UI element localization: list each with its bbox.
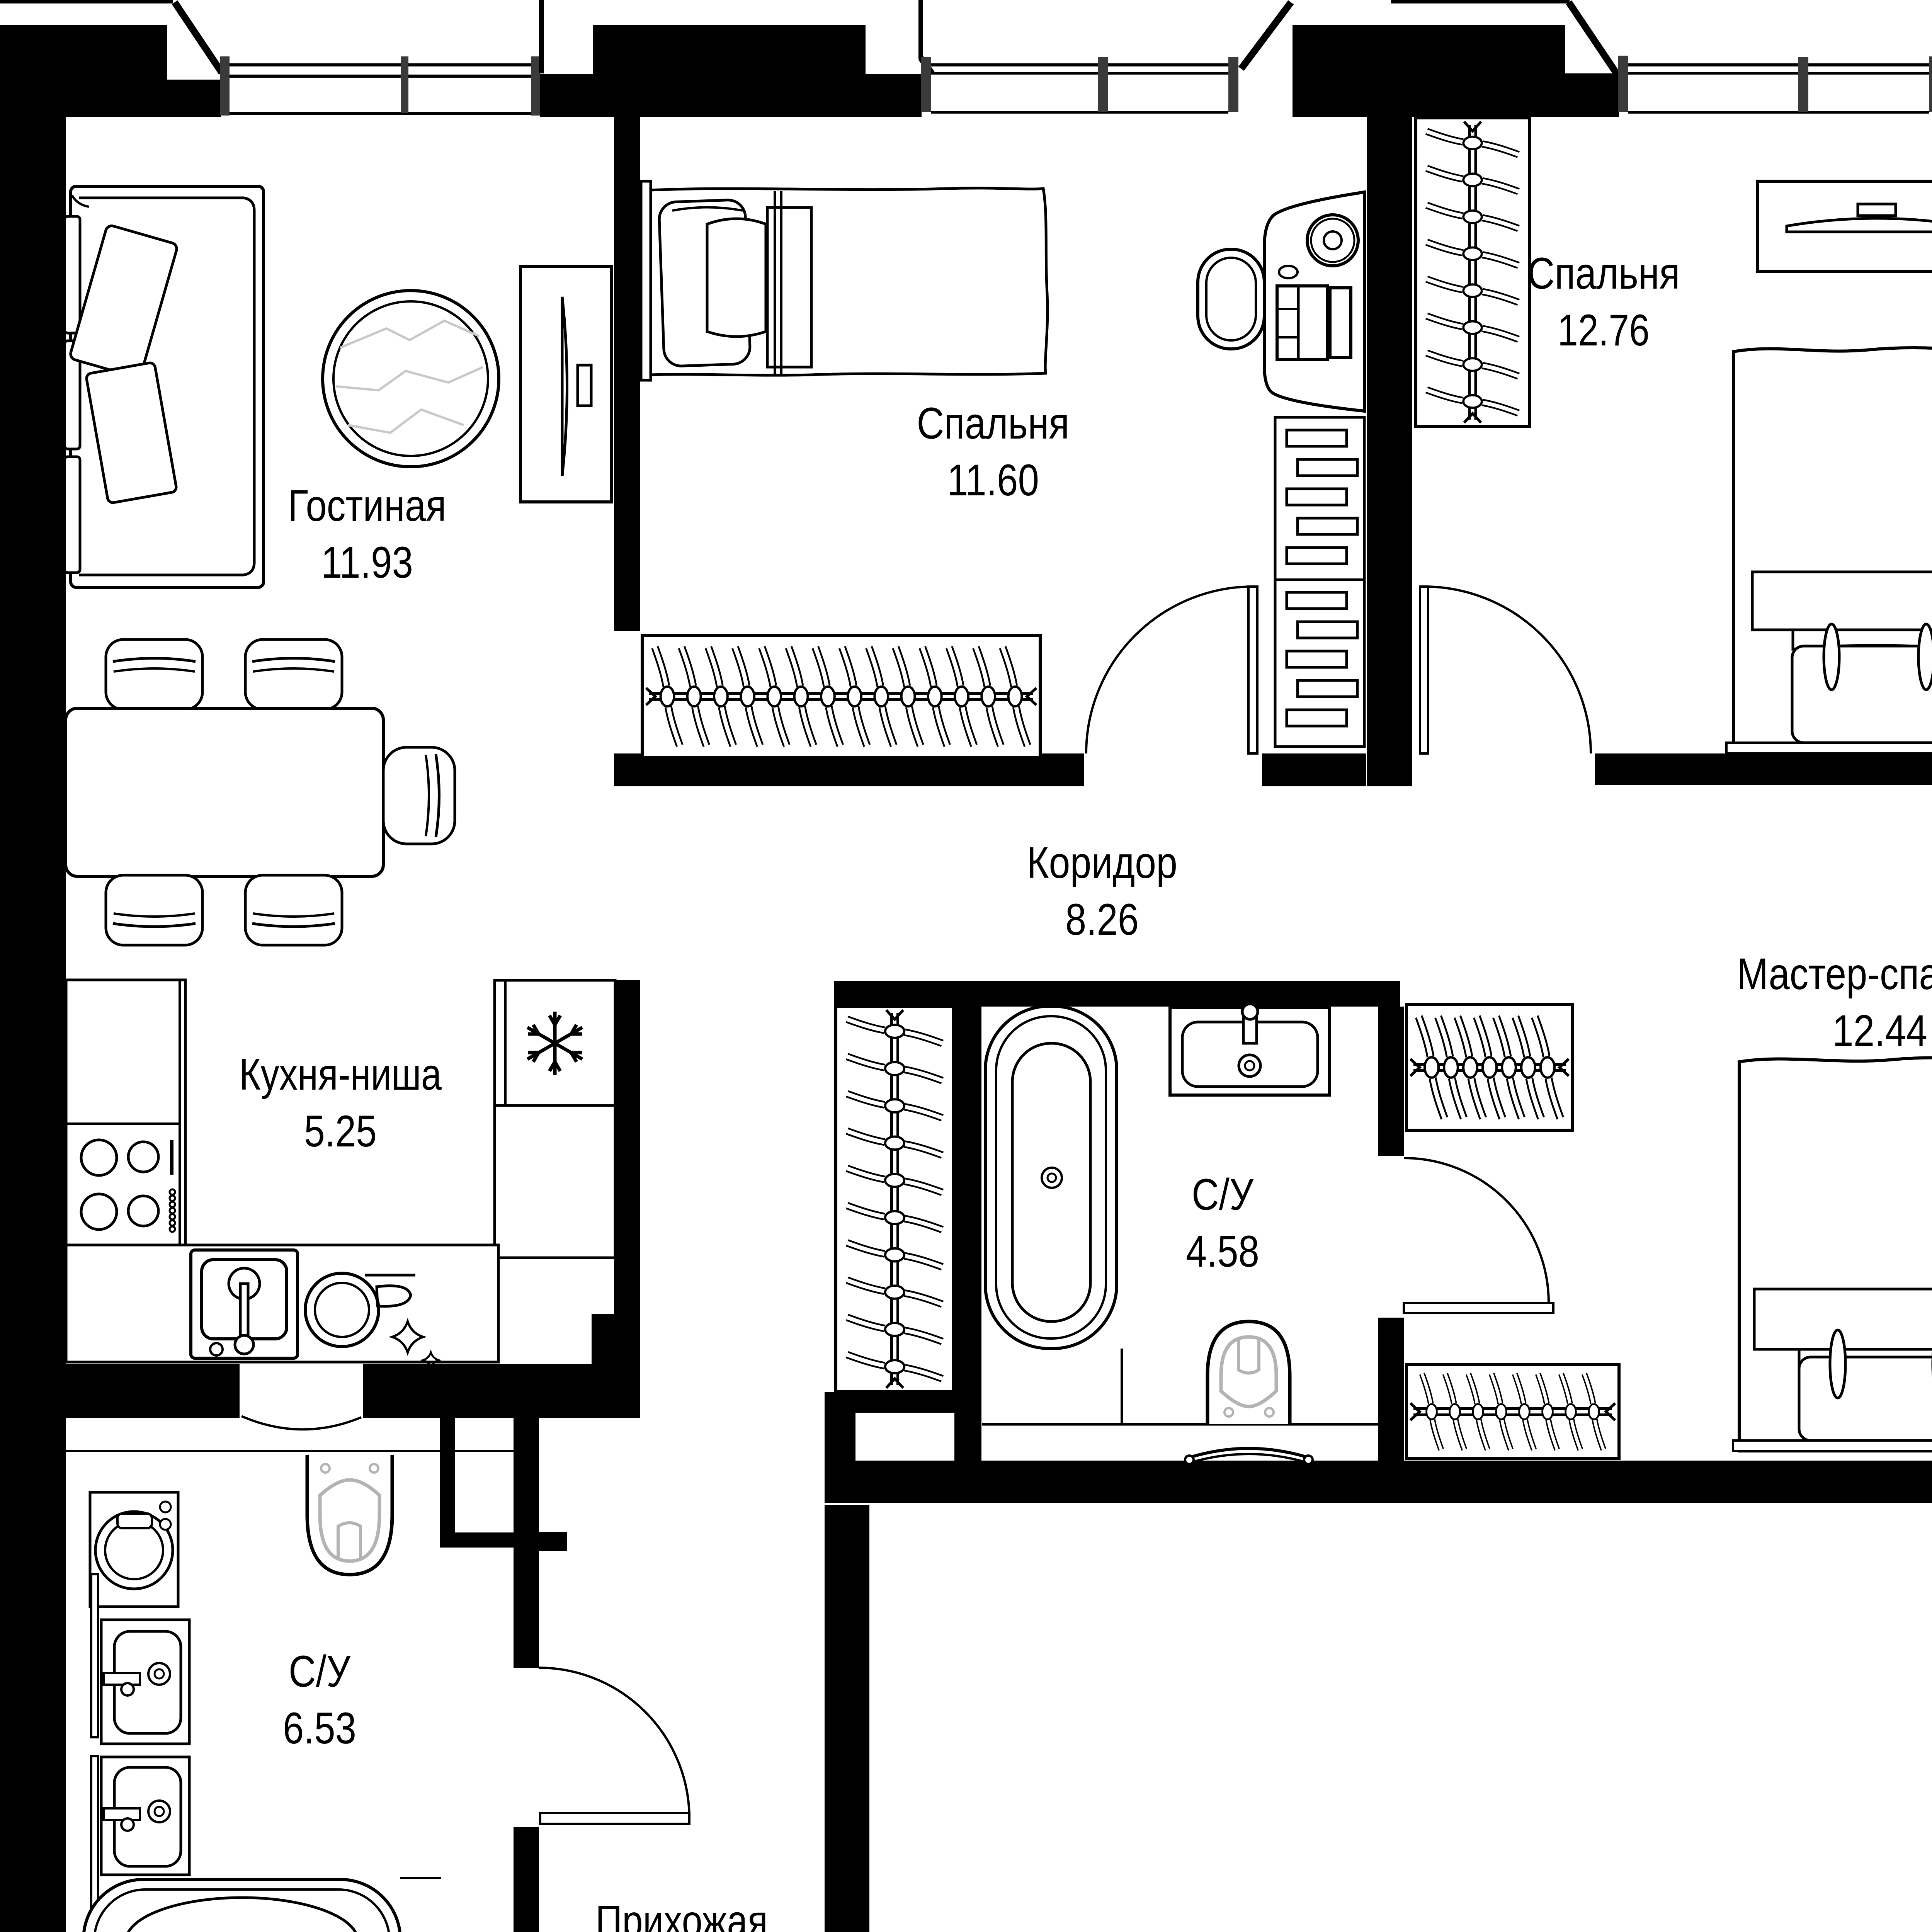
- svg-text:Кухня-ниша: Кухня-ниша: [239, 1050, 442, 1099]
- svg-text:4.58: 4.58: [1186, 1227, 1259, 1276]
- svg-text:Прихожая: Прихожая: [595, 1896, 768, 1932]
- svg-text:5.25: 5.25: [304, 1107, 377, 1156]
- svg-text:С/У: С/У: [289, 1647, 351, 1696]
- svg-text:6.53: 6.53: [283, 1704, 356, 1753]
- svg-text:Гостиная: Гостиная: [288, 481, 446, 531]
- svg-text:Коридор: Коридор: [1027, 838, 1177, 888]
- svg-text:С/У: С/У: [1192, 1170, 1254, 1219]
- svg-text:Спальня: Спальня: [917, 399, 1070, 448]
- svg-text:11.60: 11.60: [947, 456, 1039, 505]
- svg-text:Спальня: Спальня: [1527, 249, 1680, 298]
- svg-text:Мастер-спальня: Мастер-спальня: [1737, 949, 1932, 999]
- svg-text:8.26: 8.26: [1065, 895, 1139, 944]
- svg-text:12.44: 12.44: [1832, 1006, 1927, 1056]
- svg-text:11.93: 11.93: [321, 538, 413, 587]
- svg-text:12.76: 12.76: [1558, 306, 1650, 355]
